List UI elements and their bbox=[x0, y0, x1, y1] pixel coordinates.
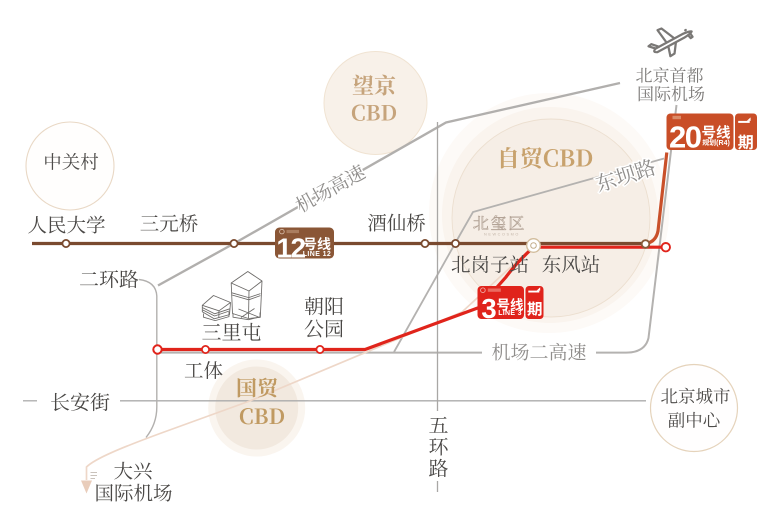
svg-text:20: 20 bbox=[669, 120, 701, 155]
svg-text:中关村: 中关村 bbox=[43, 149, 99, 175]
svg-text:望京: 望京 bbox=[352, 70, 396, 101]
svg-text:公园: 公园 bbox=[304, 313, 344, 342]
svg-text:自贸CBD: 自贸CBD bbox=[497, 141, 594, 174]
svg-text:12: 12 bbox=[276, 233, 305, 264]
svg-text:NEWCOSMO: NEWCOSMO bbox=[484, 233, 520, 237]
svg-text:工体: 工体 bbox=[184, 356, 224, 384]
svg-text:国际机场: 国际机场 bbox=[637, 80, 705, 105]
svg-text:机场高速: 机场高速 bbox=[290, 158, 370, 218]
svg-text:二环路: 二环路 bbox=[79, 264, 139, 293]
svg-text:北京城市: 北京城市 bbox=[661, 384, 731, 409]
svg-text:副中心: 副中心 bbox=[668, 408, 721, 433]
svg-text:北岗子站: 北岗子站 bbox=[451, 250, 529, 278]
svg-text:北玺区: 北玺区 bbox=[473, 211, 526, 234]
svg-text:机场二高速: 机场二高速 bbox=[491, 338, 586, 365]
svg-text:LINE 12: LINE 12 bbox=[303, 251, 331, 258]
svg-text:期: 期 bbox=[527, 298, 543, 320]
svg-text:东风站: 东风站 bbox=[542, 250, 601, 278]
svg-text:期: 期 bbox=[738, 129, 754, 153]
svg-text:CBD: CBD bbox=[239, 401, 285, 431]
svg-text:酒仙桥: 酒仙桥 bbox=[367, 208, 426, 236]
svg-text:规划(R4): 规划(R4) bbox=[702, 138, 730, 148]
svg-text:CBD: CBD bbox=[351, 98, 397, 128]
svg-text:国贸: 国贸 bbox=[236, 373, 278, 403]
svg-text:人民大学: 人民大学 bbox=[27, 210, 105, 238]
svg-text:三里屯: 三里屯 bbox=[202, 317, 262, 346]
svg-text:LINE 3: LINE 3 bbox=[498, 310, 522, 317]
svg-text:路: 路 bbox=[429, 453, 449, 482]
svg-text:国际机场: 国际机场 bbox=[94, 478, 172, 506]
svg-text:3: 3 bbox=[481, 293, 496, 324]
svg-text:长安街: 长安街 bbox=[50, 387, 110, 416]
svg-text:三元桥: 三元桥 bbox=[140, 209, 199, 237]
